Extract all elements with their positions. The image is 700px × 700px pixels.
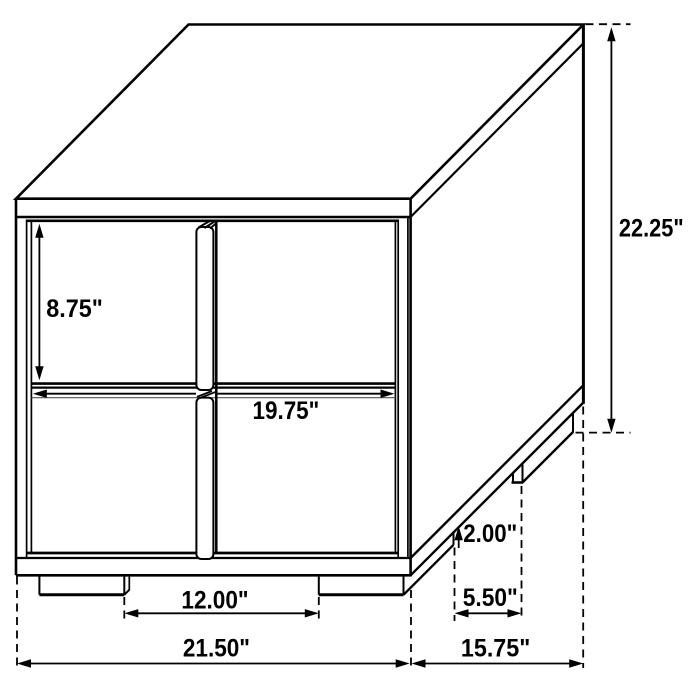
- svg-text:12.00": 12.00": [181, 587, 248, 615]
- svg-text:19.75": 19.75": [253, 397, 320, 425]
- svg-text:22.25": 22.25": [619, 215, 684, 243]
- svg-text:8.75": 8.75": [46, 295, 103, 323]
- svg-text:2.00": 2.00": [463, 520, 517, 548]
- svg-text:5.50": 5.50": [463, 584, 518, 612]
- svg-text:21.50": 21.50": [183, 635, 250, 663]
- svg-text:15.75": 15.75": [461, 635, 530, 663]
